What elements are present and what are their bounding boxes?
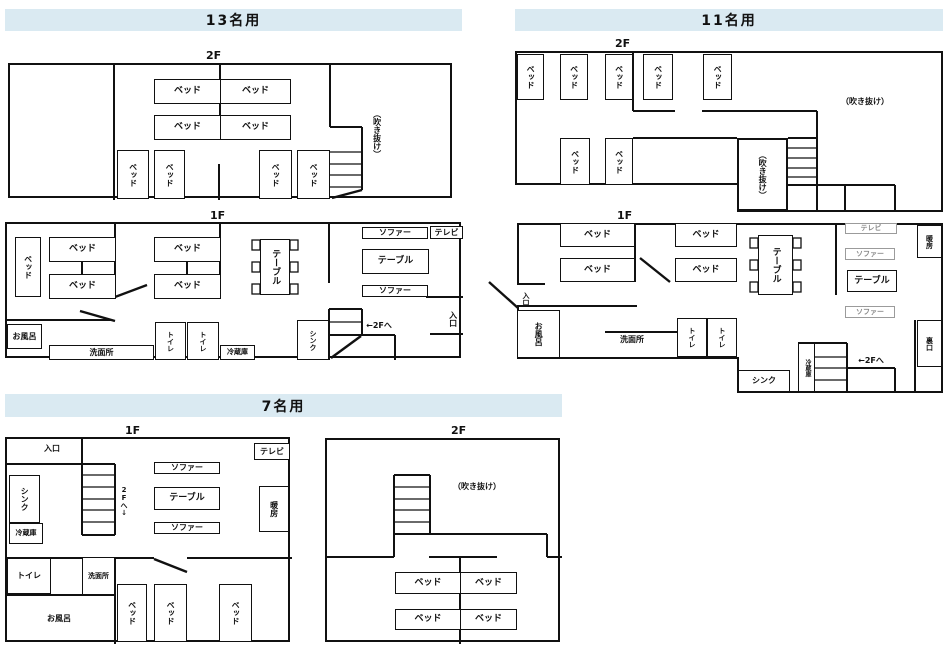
plan-11-2f: 2F	[515, 51, 943, 213]
sofa: ソファー	[362, 227, 428, 239]
tv: テレビ	[845, 223, 897, 234]
sink: シンク	[738, 370, 790, 392]
bed: ベッド	[154, 115, 221, 140]
bed: ベッド	[560, 258, 635, 282]
floor-label: 1F	[210, 210, 225, 221]
floor-label: 2F	[206, 50, 221, 61]
dining-table: テーブル	[260, 239, 290, 295]
plan-13-1f: 1F	[5, 222, 461, 358]
stairs	[330, 152, 362, 187]
section-header-7: 7名用	[5, 394, 562, 417]
section-header-13: 13名用	[5, 9, 462, 31]
bed: ベッド	[49, 237, 116, 262]
atrium-area: （吹き抜け）	[737, 138, 788, 211]
section-title: 13名用	[206, 10, 261, 30]
atrium-label: （吹き抜け）	[368, 90, 386, 178]
tv: テレビ	[254, 443, 290, 460]
bed: ベッド	[560, 223, 635, 247]
section-title: 7名用	[262, 396, 306, 416]
section-header-11: 11名用	[515, 9, 943, 31]
entrance-label: 入口	[445, 303, 461, 335]
plan-11-1f: 1F	[517, 223, 943, 393]
washroom: 洗面所	[82, 557, 115, 595]
fridge: 冷蔵庫	[798, 343, 815, 392]
plan-13-2f: 2F ベッド ベッド ベッド ベッド ベッド ベッ	[8, 63, 452, 198]
bed: ベッド	[460, 609, 517, 630]
sink: シンク	[9, 475, 40, 523]
floor-label: 1F	[125, 425, 140, 436]
bath: お風呂	[7, 324, 42, 349]
doors	[154, 559, 187, 572]
bed: ベッド	[395, 572, 461, 594]
entrance-label: 入口	[519, 285, 533, 313]
toilet: トイレ	[707, 318, 737, 357]
fridge: 冷蔵庫	[9, 523, 43, 544]
sink: シンク	[297, 320, 329, 360]
plan-7-2f: 2F （吹き抜け） ベッド ベッド ベッ	[325, 438, 560, 642]
washroom-label: 洗面所	[612, 334, 652, 346]
bath-label: お風呂	[37, 613, 81, 625]
bed: ベッド	[297, 150, 330, 199]
back-exit: 裏口	[917, 320, 942, 367]
fridge: 冷蔵庫	[220, 345, 255, 360]
to-2f-down-label: 2Fへ↓	[117, 477, 131, 525]
living-table: テーブル	[847, 270, 897, 292]
toilet: トイレ	[677, 318, 707, 357]
living-table: テーブル	[154, 487, 220, 510]
bed: ベッド	[154, 584, 187, 642]
floor-label: 2F	[451, 425, 466, 436]
to-2f-label: ←2Fへ	[851, 356, 891, 366]
bed: ベッド	[154, 79, 221, 104]
floor-label: 1F	[617, 210, 632, 221]
entrance-label: 入口	[22, 442, 82, 456]
bed: ベッド	[154, 274, 221, 299]
tv: テレビ	[430, 226, 463, 239]
stairs	[82, 475, 115, 522]
stair-diagonal	[332, 190, 362, 198]
bed: ベッド	[395, 609, 461, 630]
bed: ベッド	[560, 54, 588, 100]
bath: お風呂	[517, 310, 560, 358]
dining-table: テーブル	[758, 235, 793, 295]
living-table: テーブル	[362, 249, 429, 274]
toilet: トイレ	[155, 322, 186, 360]
bed: ベッド	[49, 274, 116, 299]
plan-7-1f: 1F 入口	[5, 437, 290, 642]
stairs	[394, 487, 430, 522]
bed: ベッド	[154, 150, 185, 199]
atrium-label: （吹き抜け）	[433, 481, 521, 493]
bed: ベッド	[605, 138, 633, 185]
stairs	[788, 148, 817, 177]
floorplan-canvas: 13名用 11名用 7名用 2F	[0, 0, 950, 651]
bed: ベッド	[117, 150, 149, 199]
sofa: ソファー	[845, 248, 895, 260]
atrium-label: （吹き抜け）	[821, 96, 909, 108]
sofa: ソファー	[845, 306, 895, 318]
bed: ベッド	[219, 584, 252, 642]
bed: ベッド	[15, 237, 41, 297]
sofa: ソファー	[154, 462, 220, 474]
bed: ベッド	[675, 258, 737, 282]
bed: ベッド	[703, 54, 732, 100]
bed: ベッド	[517, 54, 544, 100]
bed: ベッド	[605, 54, 633, 100]
heater: 暖房	[917, 225, 942, 258]
bed: ベッド	[220, 115, 291, 140]
bed: ベッド	[154, 237, 221, 262]
stairs	[815, 357, 847, 380]
bed: ベッド	[560, 138, 590, 185]
bed: ベッド	[460, 572, 517, 594]
to-2f-label: ←2Fへ	[361, 321, 397, 331]
sofa: ソファー	[362, 285, 428, 297]
bed: ベッド	[675, 223, 737, 247]
toilet: トイレ	[187, 322, 219, 360]
bed: ベッド	[117, 584, 147, 642]
floor-label: 2F	[615, 38, 630, 49]
section-title: 11名用	[701, 10, 756, 30]
sofa: ソファー	[154, 522, 220, 534]
toilet: トイレ	[7, 558, 51, 594]
bed: ベッド	[259, 150, 292, 199]
bed: ベッド	[220, 79, 291, 104]
heater: 暖房	[259, 486, 289, 532]
bed: ベッド	[643, 54, 673, 100]
washroom: 洗面所	[49, 345, 154, 360]
